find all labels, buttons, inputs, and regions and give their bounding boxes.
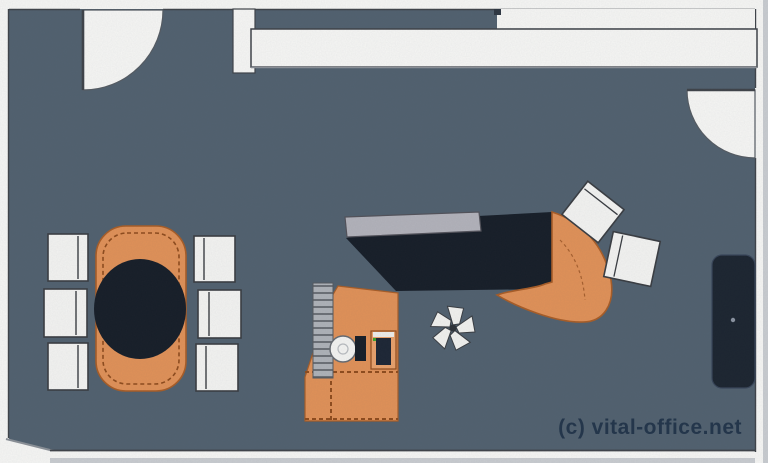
image-grain xyxy=(0,0,768,463)
watermark: (c) vital-office.net xyxy=(558,416,742,440)
floor-plan-drawing xyxy=(0,0,768,463)
floor-plan: (c) vital-office.net xyxy=(0,0,768,463)
